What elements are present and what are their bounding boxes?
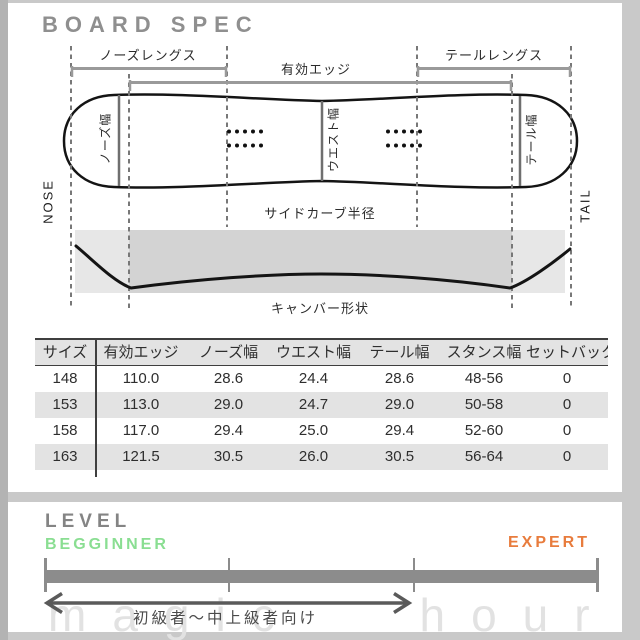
nose-side-label: NOSE xyxy=(41,172,56,232)
cell-size: 148 xyxy=(35,366,95,392)
effective-edge-label: 有効エッジ xyxy=(276,59,356,78)
cell-waist-width: 26.0 xyxy=(270,444,357,470)
cell-nose-width: 29.0 xyxy=(187,392,270,418)
expert-label: EXPERT xyxy=(508,534,590,552)
beginner-label: BEGGINNER xyxy=(45,536,169,554)
header-tail-width: テール幅 xyxy=(357,340,442,365)
level-tick xyxy=(413,558,416,592)
header-setback: セットバック xyxy=(526,340,608,365)
level-bar xyxy=(45,570,598,583)
cell-nose-width: 28.6 xyxy=(187,366,270,392)
cell-nose-width: 30.5 xyxy=(187,444,270,470)
cell-stance-width: 52-60 xyxy=(442,418,526,444)
cell-waist-width: 24.4 xyxy=(270,366,357,392)
waist-width-label: ウエスト幅 xyxy=(325,103,342,177)
header-waist-width: ウエスト幅 xyxy=(270,340,357,365)
cell-size: 153 xyxy=(35,392,95,418)
header-size: サイズ xyxy=(35,340,95,365)
level-tick xyxy=(44,558,47,592)
nose-length-bracket xyxy=(71,66,227,77)
table-column-divider xyxy=(95,340,97,477)
level-title: LEVEL xyxy=(45,511,131,533)
tail-length-label: テールレングス xyxy=(434,45,554,64)
effective-edge-bracket xyxy=(129,80,512,91)
camber-shape-label: キャンバー形状 xyxy=(250,298,390,317)
cell-effective-edge: 110.0 xyxy=(95,366,187,392)
table-row: 163 121.5 30.5 26.0 30.5 56-64 0 xyxy=(35,444,608,470)
table-row: 153 113.0 29.0 24.7 29.0 50-58 0 xyxy=(35,392,608,418)
nose-length-label: ノーズレングス xyxy=(88,45,208,64)
cell-setback: 0 xyxy=(526,392,608,418)
cell-effective-edge: 113.0 xyxy=(95,392,187,418)
cell-nose-width: 29.4 xyxy=(187,418,270,444)
skill-range-label: 初級者～中上級者向け xyxy=(118,606,333,628)
cell-waist-width: 24.7 xyxy=(270,392,357,418)
header-effective-edge: 有効エッジ xyxy=(95,340,187,365)
cell-stance-width: 50-58 xyxy=(442,392,526,418)
cell-size: 163 xyxy=(35,444,95,470)
cell-setback: 0 xyxy=(526,366,608,392)
tail-side-label: TAIL xyxy=(578,176,593,236)
cell-stance-width: 48-56 xyxy=(442,366,526,392)
cell-setback: 0 xyxy=(526,444,608,470)
cell-stance-width: 56-64 xyxy=(442,444,526,470)
spec-table-header-row: サイズ 有効エッジ ノーズ幅 ウエスト幅 テール幅 スタンス幅 セットバック xyxy=(35,340,608,366)
cell-size: 158 xyxy=(35,418,95,444)
tail-length-bracket xyxy=(417,66,571,77)
header-stance-width: スタンス幅 xyxy=(442,340,526,365)
cell-tail-width: 28.6 xyxy=(357,366,442,392)
nose-width-label: ノーズ幅 xyxy=(97,109,114,169)
spec-table: サイズ 有効エッジ ノーズ幅 ウエスト幅 テール幅 スタンス幅 セットバック 1… xyxy=(35,338,608,470)
table-row: 148 110.0 28.6 24.4 28.6 48-56 0 xyxy=(35,366,608,392)
camber-band-dark xyxy=(129,230,512,293)
board-outline xyxy=(64,94,577,187)
level-tick xyxy=(228,558,231,592)
cell-tail-width: 30.5 xyxy=(357,444,442,470)
cell-effective-edge: 117.0 xyxy=(95,418,187,444)
table-row: 158 117.0 29.4 25.0 29.4 52-60 0 xyxy=(35,418,608,444)
cell-effective-edge: 121.5 xyxy=(95,444,187,470)
cell-tail-width: 29.0 xyxy=(357,392,442,418)
sidecut-radius-label: サイドカーブ半径 xyxy=(250,203,390,222)
header-nose-width: ノーズ幅 xyxy=(187,340,270,365)
page: BOARD SPEC xyxy=(0,0,640,640)
cell-waist-width: 25.0 xyxy=(270,418,357,444)
level-tick xyxy=(596,558,599,592)
cell-setback: 0 xyxy=(526,418,608,444)
tail-width-label: テール幅 xyxy=(523,110,540,170)
cell-tail-width: 29.4 xyxy=(357,418,442,444)
